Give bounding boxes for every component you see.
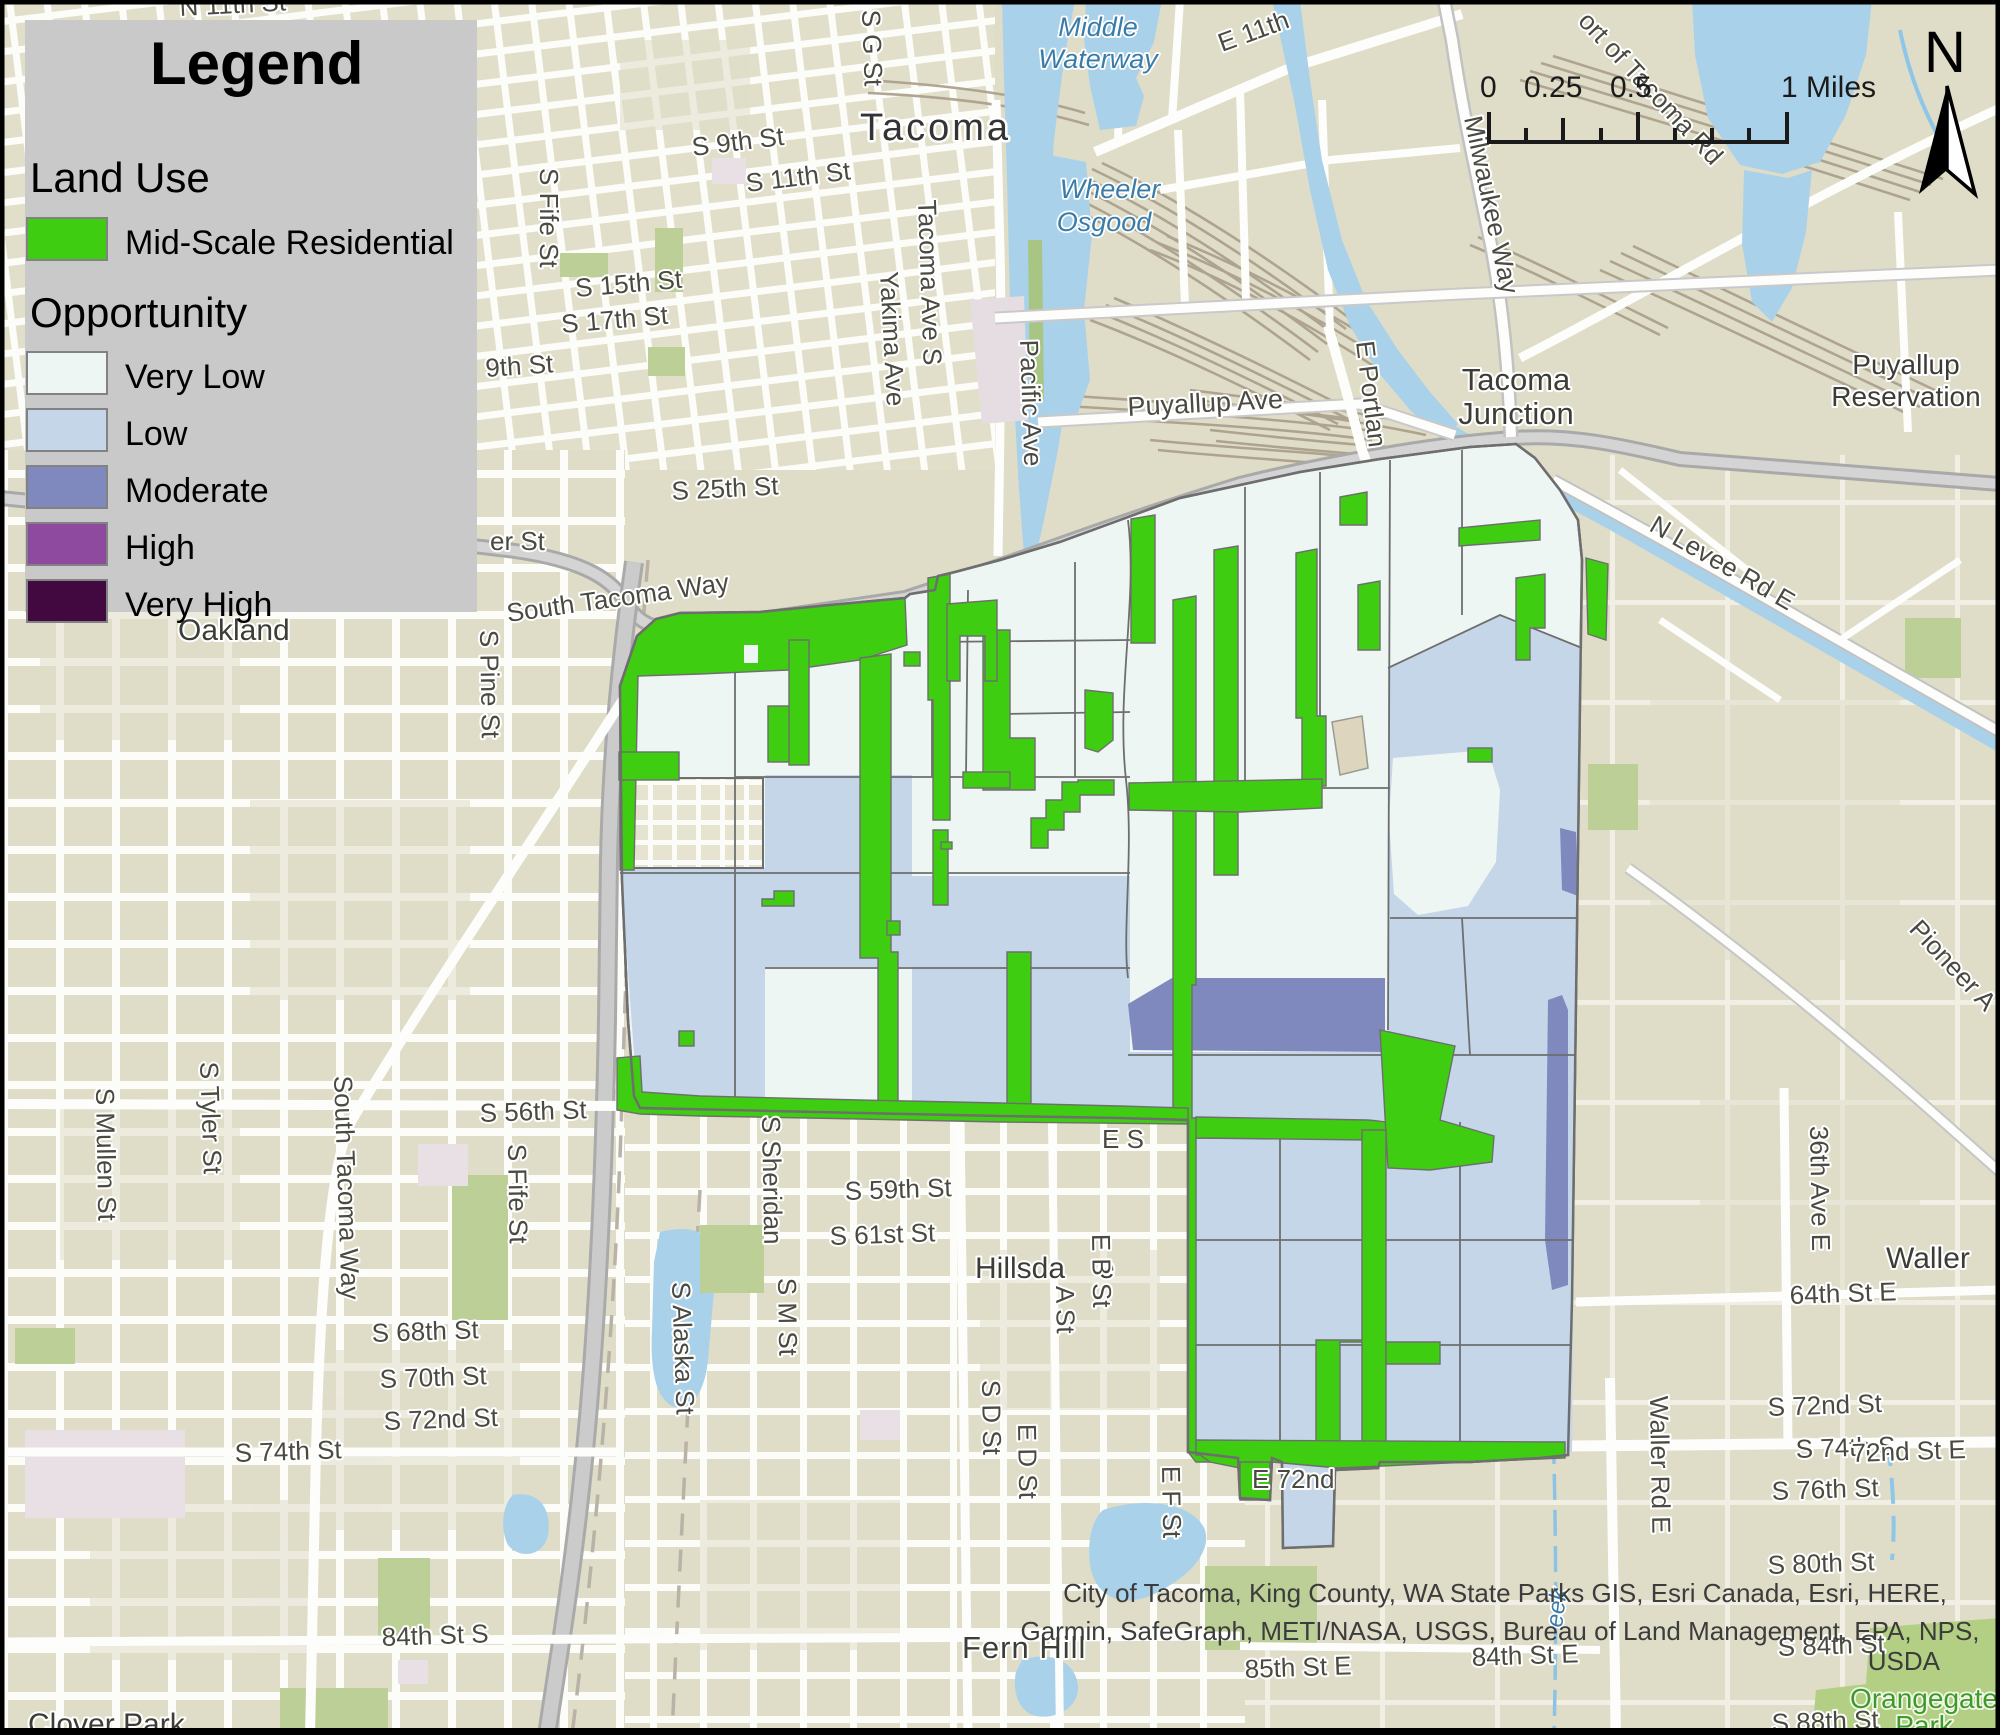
svg-text:S Alaska St: S Alaska St (666, 1281, 701, 1416)
svg-text:Puyallup: Puyallup (1852, 349, 1959, 380)
svg-text:er St: er St (490, 526, 546, 556)
svg-text:0: 0 (1480, 71, 1497, 104)
svg-text:Middle: Middle (1058, 12, 1138, 42)
svg-text:E S: E S (1102, 1124, 1144, 1154)
svg-text:Hillsda: Hillsda (975, 1252, 1065, 1285)
svg-text:1 Miles: 1 Miles (1781, 71, 1876, 104)
svg-text:E D St: E D St (1012, 1424, 1043, 1500)
svg-text:Tacoma: Tacoma (860, 107, 1011, 149)
svg-text:Waller Rd E: Waller Rd E (1644, 1396, 1676, 1534)
svg-text:S Tyler St: S Tyler St (194, 1061, 228, 1175)
svg-text:A St: A St (1050, 1286, 1081, 1335)
svg-text:S 72nd St: S 72nd St (1767, 1388, 1883, 1422)
svg-text:E F St: E F St (1156, 1466, 1187, 1540)
svg-text:Very Low: Very Low (125, 358, 265, 396)
svg-text:Waterway: Waterway (1038, 44, 1159, 74)
svg-text:S Sheridan: S Sheridan (756, 1116, 788, 1245)
svg-text:84th St S: 84th St S (381, 1618, 489, 1652)
svg-text:S Fife St: S Fife St (502, 1144, 534, 1245)
svg-text:Osgood: Osgood (1057, 207, 1153, 237)
svg-text:Opportunity: Opportunity (30, 289, 247, 336)
svg-text:Mid-Scale Residential: Mid-Scale Residential (125, 224, 454, 262)
svg-text:Waller: Waller (1886, 1242, 1970, 1275)
svg-text:Legend: Legend (150, 30, 363, 97)
svg-text:E 72nd: E 72nd (1252, 1464, 1334, 1494)
svg-text:S D St: S D St (976, 1380, 1007, 1456)
svg-text:Garmin, SafeGraph, METI/NASA,: Garmin, SafeGraph, METI/NASA, USGS, Bure… (1020, 1616, 1979, 1646)
svg-text:Very High: Very High (125, 586, 272, 624)
svg-text:S 68th St: S 68th St (371, 1314, 480, 1348)
svg-text:0.25: 0.25 (1524, 71, 1582, 104)
svg-text:Moderate: Moderate (125, 472, 269, 510)
svg-text:S Pine St: S Pine St (474, 630, 506, 740)
svg-text:S G St: S G St (856, 9, 889, 87)
svg-text:S 70th St: S 70th St (379, 1360, 488, 1394)
svg-text:S 76th St: S 76th St (1771, 1472, 1880, 1506)
svg-text:Tacoma Ave S: Tacoma Ave S (912, 199, 948, 366)
svg-text:S M St: S M St (772, 1278, 803, 1357)
svg-text:N: N (1924, 20, 1966, 85)
svg-text:Reservation: Reservation (1831, 381, 1980, 412)
svg-text:S Fife St: S Fife St (534, 168, 564, 268)
svg-text:S Mullen St: S Mullen St (90, 1088, 122, 1222)
svg-text:Tacoma: Tacoma (1462, 362, 1571, 397)
svg-text:72nd St E: 72nd St E (1851, 1434, 1966, 1468)
svg-text:Pacific Ave: Pacific Ave (1014, 339, 1048, 467)
svg-text:64th St E: 64th St E (1789, 1276, 1897, 1310)
svg-text:USDA: USDA (1868, 1646, 1941, 1676)
svg-text:S 61st St: S 61st St (829, 1217, 936, 1251)
svg-text:S 25th St: S 25th St (671, 470, 780, 506)
svg-text:S 80th St: S 80th St (1767, 1546, 1876, 1580)
svg-text:S 59th St: S 59th St (844, 1172, 953, 1206)
svg-text:Junction: Junction (1458, 396, 1573, 431)
svg-text:0.5: 0.5 (1610, 71, 1652, 104)
svg-text:E B St: E B St (1086, 1234, 1117, 1309)
svg-text:City of Tacoma, King County, W: City of Tacoma, King County, WA State Pa… (1063, 1578, 1947, 1608)
svg-text:S 74th St: S 74th St (234, 1434, 343, 1468)
svg-text:S 56th St: S 56th St (479, 1094, 588, 1128)
svg-text:High: High (125, 529, 195, 567)
svg-text:85th St E: 85th St E (1244, 1650, 1352, 1684)
svg-text:9th St: 9th St (484, 348, 555, 383)
svg-text:Wheeler: Wheeler (1060, 174, 1162, 204)
svg-text:36th Ave E: 36th Ave E (1804, 1126, 1836, 1252)
svg-text:Land Use: Land Use (30, 154, 210, 201)
svg-text:Low: Low (125, 415, 188, 453)
svg-text:S 72nd St: S 72nd St (383, 1402, 499, 1436)
